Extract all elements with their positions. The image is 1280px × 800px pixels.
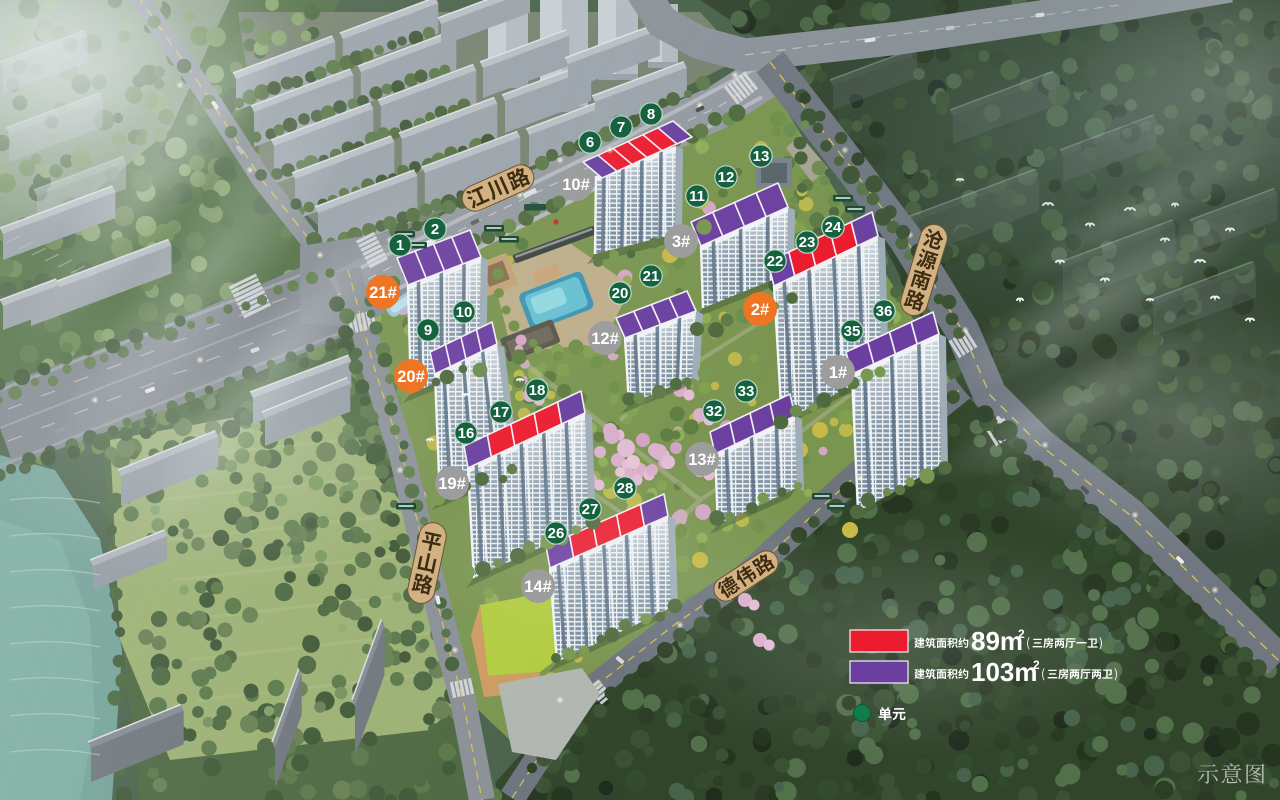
svg-text:10#: 10# — [562, 176, 590, 194]
svg-text:20#: 20# — [397, 368, 425, 386]
svg-text:9: 9 — [424, 322, 432, 339]
svg-text:2#: 2# — [751, 301, 769, 319]
svg-text:17: 17 — [493, 404, 510, 421]
svg-text:103m: 103m — [971, 657, 1038, 687]
svg-text:7: 7 — [617, 119, 625, 136]
svg-text:12: 12 — [718, 169, 735, 186]
svg-text:19#: 19# — [438, 475, 466, 493]
svg-text:1#: 1# — [829, 364, 847, 382]
svg-text:11: 11 — [689, 188, 705, 205]
svg-text:32: 32 — [706, 403, 723, 420]
svg-text:24: 24 — [825, 219, 842, 236]
svg-text:16: 16 — [458, 425, 475, 442]
svg-text:21#: 21# — [369, 284, 397, 302]
svg-text:36: 36 — [876, 303, 893, 320]
svg-text:22: 22 — [767, 253, 784, 270]
svg-text:2: 2 — [1018, 627, 1025, 641]
svg-text:35: 35 — [844, 323, 861, 340]
svg-text:13#: 13# — [688, 451, 716, 469]
svg-text:14#: 14# — [524, 578, 552, 596]
svg-text:21: 21 — [643, 268, 660, 285]
svg-text:18: 18 — [529, 382, 546, 399]
svg-text:20: 20 — [612, 285, 629, 302]
svg-text:23: 23 — [799, 234, 816, 251]
svg-text:28: 28 — [617, 480, 634, 497]
svg-text:12#: 12# — [591, 330, 619, 348]
svg-text:13: 13 — [753, 148, 770, 165]
svg-text:3#: 3# — [672, 233, 690, 251]
svg-text:33: 33 — [738, 383, 755, 400]
svg-text:1: 1 — [396, 237, 404, 254]
svg-text:6: 6 — [586, 134, 594, 151]
svg-text:10: 10 — [456, 304, 473, 321]
svg-text:2: 2 — [1033, 658, 1040, 672]
svg-text:8: 8 — [647, 106, 655, 123]
svg-text:2: 2 — [431, 221, 439, 238]
svg-text:89m: 89m — [971, 626, 1023, 656]
svg-text:26: 26 — [548, 525, 565, 542]
svg-text:27: 27 — [582, 501, 599, 518]
